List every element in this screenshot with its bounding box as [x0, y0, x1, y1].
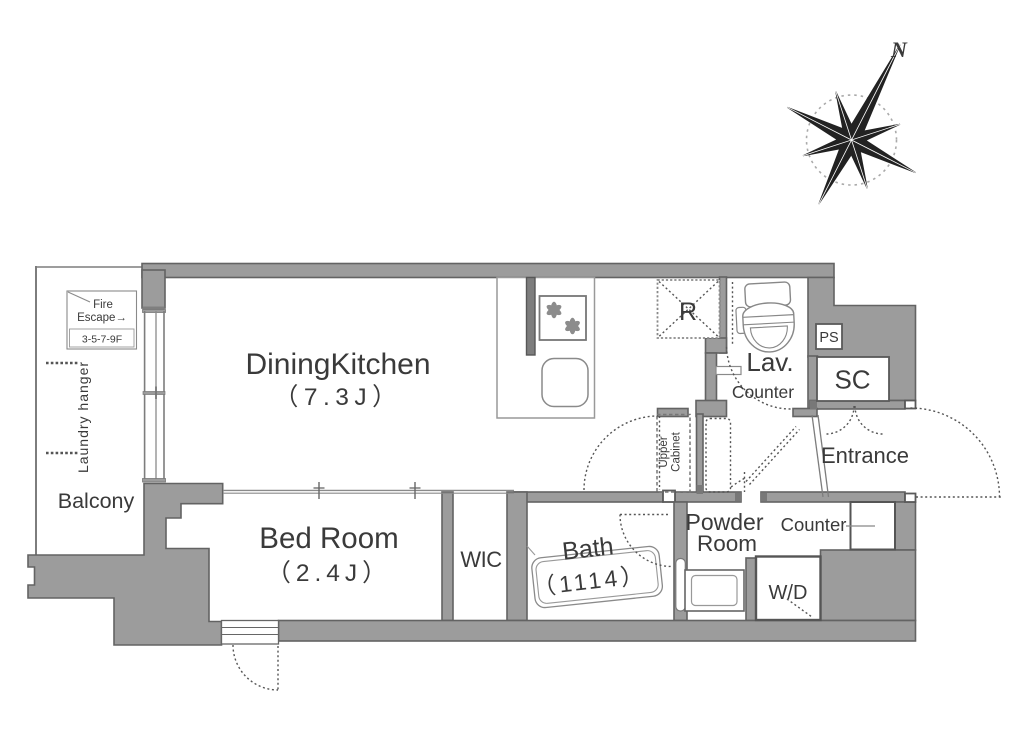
svg-text:Entrance: Entrance: [821, 443, 909, 468]
svg-text:（2.4J）: （2.4J）: [266, 559, 391, 587]
svg-text:（7.3J）: （7.3J）: [274, 383, 402, 411]
svg-text:Bed Room: Bed Room: [259, 522, 398, 555]
svg-text:Laundry hanger: Laundry hanger: [75, 361, 91, 473]
svg-text:Fire: Fire: [93, 299, 113, 311]
svg-text:Room: Room: [697, 531, 757, 556]
svg-text:SC: SC: [834, 365, 870, 395]
svg-text:W/D: W/D: [769, 582, 808, 604]
svg-text:DiningKitchen: DiningKitchen: [245, 348, 430, 381]
svg-text:WIC: WIC: [460, 547, 502, 572]
svg-text:3-5-7-9F: 3-5-7-9F: [82, 334, 122, 346]
svg-text:Counter: Counter: [732, 382, 794, 402]
svg-text:N: N: [890, 37, 908, 62]
svg-text:R: R: [679, 298, 697, 326]
svg-text:Upper: Upper: [658, 436, 670, 467]
svg-text:Lav.: Lav.: [746, 347, 793, 377]
svg-text:Escape→: Escape→: [77, 312, 127, 324]
svg-text:Bath: Bath: [561, 532, 615, 566]
svg-text:Counter: Counter: [781, 514, 847, 535]
svg-text:Balcony: Balcony: [58, 489, 135, 513]
svg-text:PS: PS: [819, 330, 838, 346]
svg-text:Cabinet: Cabinet: [671, 431, 683, 471]
